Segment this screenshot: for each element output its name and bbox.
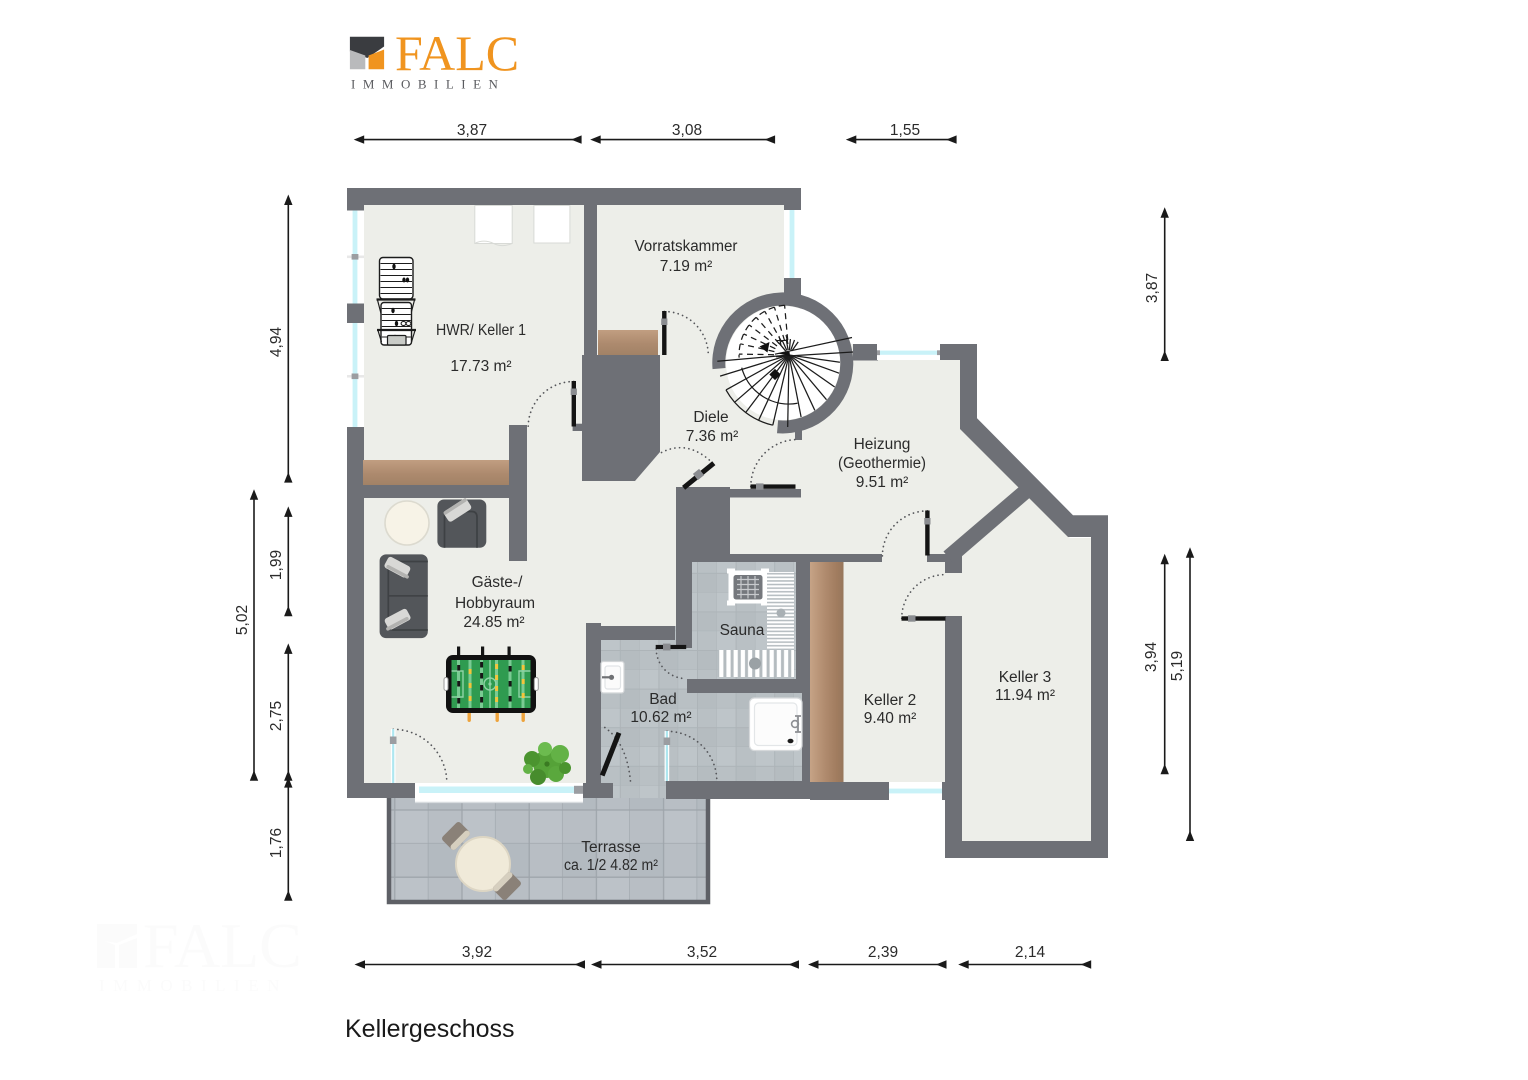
svg-text:7.36 m²: 7.36 m²	[686, 428, 739, 445]
svg-text:10.62 m²: 10.62 m²	[630, 709, 691, 726]
svg-text:Vorratskammer: Vorratskammer	[635, 238, 738, 255]
svg-text:3,52: 3,52	[687, 944, 717, 961]
svg-text:4,94: 4,94	[268, 327, 285, 358]
svg-text:Bad: Bad	[649, 691, 677, 708]
svg-text:1,76: 1,76	[268, 828, 285, 858]
svg-text:3,94: 3,94	[1143, 642, 1160, 673]
svg-text:IMMOBILIEN: IMMOBILIEN	[351, 77, 505, 92]
svg-text:2,39: 2,39	[868, 944, 898, 961]
svg-text:3,87: 3,87	[1144, 273, 1161, 303]
svg-text:Heizung: Heizung	[854, 436, 911, 453]
svg-text:Diele: Diele	[693, 409, 728, 426]
svg-text:Keller 3: Keller 3	[999, 669, 1052, 686]
svg-text:1,99: 1,99	[268, 550, 285, 580]
svg-text:2,14: 2,14	[1015, 944, 1046, 961]
svg-text:(Geothermie): (Geothermie)	[838, 455, 926, 472]
svg-text:17.73 m²: 17.73 m²	[450, 358, 511, 375]
svg-text:9.40 m²: 9.40 m²	[864, 710, 917, 727]
svg-text:24.85 m²: 24.85 m²	[463, 614, 524, 631]
svg-text:5,02: 5,02	[234, 605, 251, 635]
svg-text:FALC: FALC	[395, 25, 519, 81]
svg-text:2,75: 2,75	[268, 701, 285, 731]
svg-text:FALC: FALC	[143, 910, 302, 981]
svg-text:ca. 1/2 4.82 m²: ca. 1/2 4.82 m²	[564, 857, 658, 874]
svg-text:Sauna: Sauna	[720, 622, 765, 639]
svg-text:5,19: 5,19	[1169, 651, 1186, 681]
svg-text:IMMOBILIEN: IMMOBILIEN	[99, 976, 288, 995]
svg-text:Hobbyraum: Hobbyraum	[455, 595, 535, 612]
svg-text:Terrasse: Terrasse	[581, 839, 640, 856]
svg-text:Keller 2: Keller 2	[864, 692, 917, 709]
svg-text:3,87: 3,87	[457, 122, 487, 139]
svg-text:HWR/ Keller 1: HWR/ Keller 1	[436, 322, 526, 339]
svg-text:11.94 m²: 11.94 m²	[995, 687, 1055, 704]
svg-text:Gäste-/: Gäste-/	[472, 574, 524, 591]
svg-text:Kellergeschoss: Kellergeschoss	[345, 1015, 515, 1043]
svg-text:3,08: 3,08	[672, 122, 702, 139]
svg-text:1,55: 1,55	[890, 122, 920, 139]
svg-text:3,92: 3,92	[462, 944, 492, 961]
svg-text:7.19 m²: 7.19 m²	[660, 258, 713, 275]
svg-text:9.51 m²: 9.51 m²	[856, 474, 909, 491]
